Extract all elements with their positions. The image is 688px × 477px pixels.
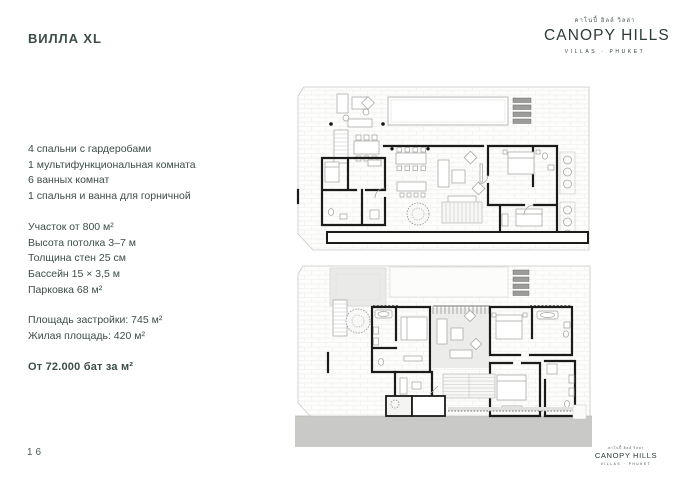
- spec-line: 1 спальня и ванна для горничной: [28, 189, 196, 205]
- terrace-edge-wall: [327, 232, 588, 243]
- spec-line: Площадь застройки: 745 м²: [28, 313, 196, 329]
- spec-line: 6 ванных комнат: [28, 173, 196, 189]
- spec-line: Высота потолка 3–7 м: [28, 236, 196, 252]
- pool: [388, 97, 508, 125]
- page-title: ВИЛЛА XL: [28, 31, 102, 46]
- spec-line: Жилая площадь: 420 м²: [28, 329, 196, 345]
- floor-plan-second-floor-image: [295, 258, 597, 452]
- brochure-page: ВИЛЛА XL คาโนปี้ ฮิลล์ วิลล่า CANOPY HIL…: [0, 0, 688, 477]
- villa-specs: 4 спальни с гардеробами 1 мультифункцион…: [28, 142, 196, 375]
- brand-name: CANOPY HILLS: [544, 27, 666, 45]
- driveway: [295, 416, 592, 447]
- courtyard-tree: [407, 203, 429, 225]
- brand-logo: คาโนปี้ ฮิลล์ วิลล่า CANOPY HILLS VILLAS…: [544, 15, 666, 55]
- spec-line: Парковка 68 м²: [28, 283, 196, 299]
- brand-tagline: VILLAS · PHUKET: [544, 49, 666, 55]
- brand-logo-small: คาโนปี้ ฮิลล์ วิลล่า CANOPY HILLS VILLAS…: [580, 445, 672, 466]
- spec-line: Участок от 800 м²: [28, 220, 196, 236]
- spec-line: 1 мультифункциональная комната: [28, 158, 196, 174]
- areas-list: Площадь застройки: 745 м² Жилая площадь:…: [28, 313, 196, 344]
- terrace-tree: [346, 309, 370, 333]
- details-list: Участок от 800 м² Высота потолка 3–7 м Т…: [28, 220, 196, 299]
- brand-tagline: VILLAS · PHUKET: [580, 462, 672, 466]
- spec-line: Толщина стен 25 см: [28, 251, 196, 267]
- interior-stairs: [443, 374, 495, 398]
- brand-name: CANOPY HILLS: [580, 451, 672, 460]
- stairs: [333, 300, 347, 336]
- spec-line: Бассейн 15 × 3,5 м: [28, 267, 196, 283]
- price-line: От 72.000 бат за м²: [28, 360, 196, 376]
- interior-stairs: [442, 202, 482, 223]
- spec-line: 4 спальни с гардеробами: [28, 142, 196, 158]
- brand-thai-script: คาโนปี้ ฮิลล์ วิลล่า: [544, 15, 666, 24]
- rooms-list: 4 спальни с гардеробами 1 мультифункцион…: [28, 142, 196, 205]
- floor-plan-first-floor-image: [295, 80, 597, 258]
- brand-thai-script: คาโนปี้ ฮิลล์ วิลล่า: [580, 445, 672, 450]
- page-number: 16: [27, 447, 44, 458]
- pool-outline-below: [390, 267, 508, 297]
